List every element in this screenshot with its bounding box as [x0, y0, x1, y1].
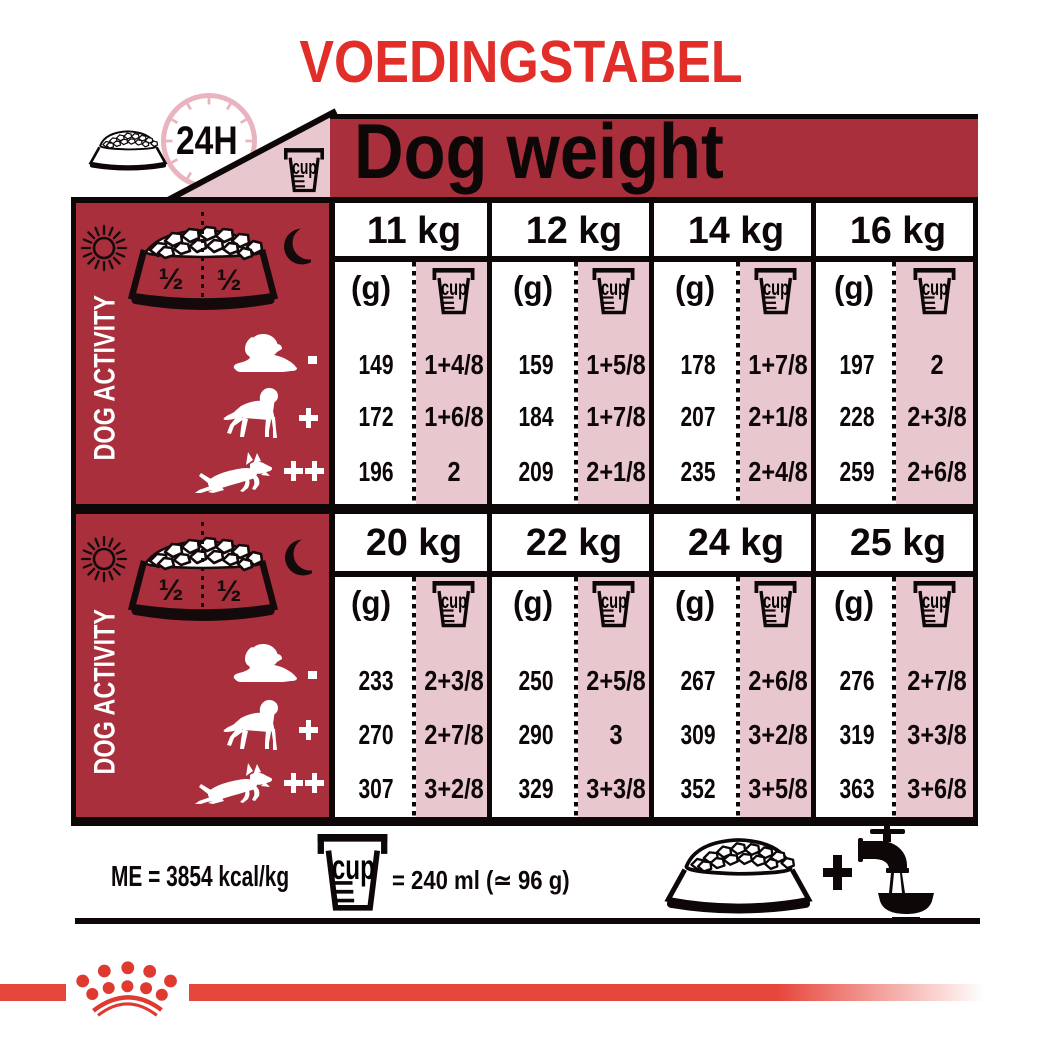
svg-text:½: ½ [216, 264, 241, 297]
svg-text:½: ½ [158, 263, 183, 296]
svg-text:½: ½ [158, 574, 183, 607]
svg-text:½: ½ [216, 575, 241, 608]
